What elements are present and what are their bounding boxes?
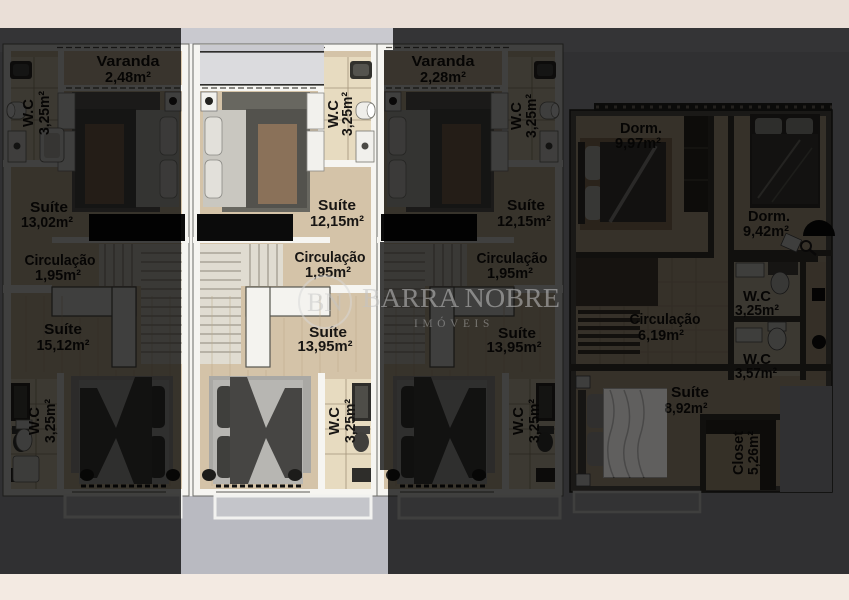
svg-text:BARRA NOBRE: BARRA NOBRE [362, 283, 560, 313]
svg-text:Suíte: Suíte [318, 197, 356, 214]
svg-text:BN: BN [307, 288, 343, 317]
svg-text:IMÓVEIS: IMÓVEIS [414, 316, 494, 330]
svg-text:3,25m²: 3,25m² [342, 399, 359, 443]
svg-text:13,95m²: 13,95m² [298, 338, 353, 355]
svg-text:12,15m²: 12,15m² [310, 213, 364, 230]
svg-text:3,25m²: 3,25m² [339, 92, 356, 136]
svg-text:W.C: W.C [326, 407, 343, 435]
